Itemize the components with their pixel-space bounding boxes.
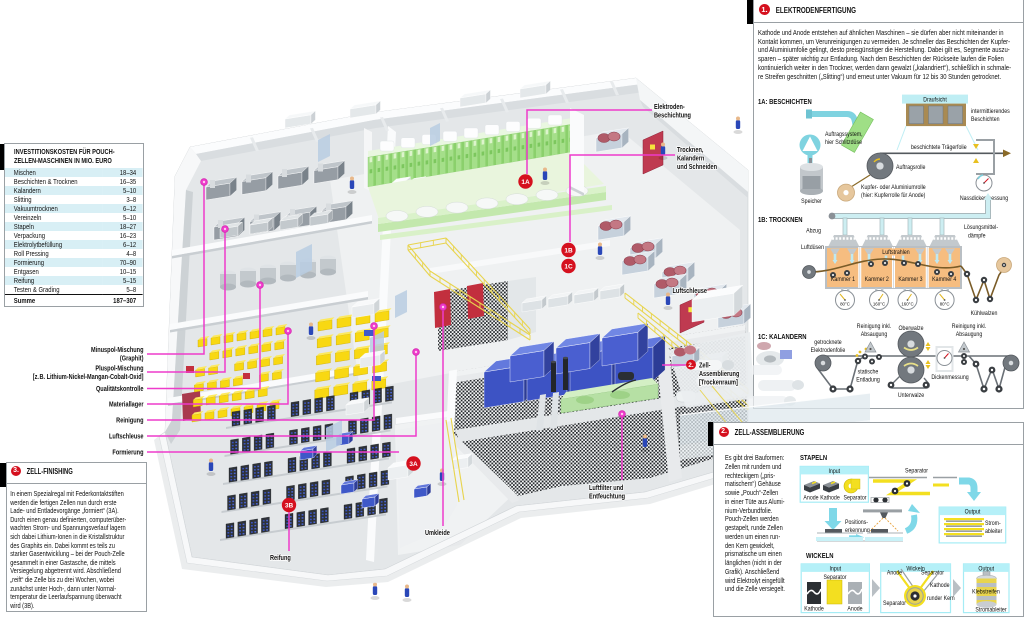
svg-text:Reinigung inkl.: Reinigung inkl. [952,324,987,331]
svg-text:1C: 1C [564,263,573,270]
svg-text:ableiter: ableiter [985,529,1002,536]
svg-text:Speicher: Speicher [801,199,822,206]
svg-text:Separator: Separator [843,495,866,502]
svg-text:Kammer 2: Kammer 2 [865,277,889,284]
svg-text:Materiallager: Materiallager [109,401,144,409]
svg-text:Reifung: Reifung [270,554,291,562]
svg-text:80°C: 80°C [840,302,850,307]
svg-text:Luftstrahlen: Luftstrahlen [882,250,909,257]
svg-text:2.: 2. [688,362,694,369]
svg-text:dämpfe: dämpfe [968,233,985,240]
svg-text:Kammer 3: Kammer 3 [898,277,922,284]
svg-text:Beschichten: Beschichten [971,117,1000,124]
svg-text:Auftragsrolle: Auftragsrolle [896,165,925,172]
svg-text:Separator: Separator [905,468,928,475]
svg-text:1B: TROCKNEN: 1B: TROCKNEN [758,217,803,225]
svg-text:Elektroden-: Elektroden- [654,103,685,111]
svg-text:Zell-: Zell- [699,362,710,370]
svg-text:Luftschleuse: Luftschleuse [673,287,708,295]
svg-text:[Trockenraum]: [Trockenraum] [699,379,738,387]
svg-text:Assemblierung: Assemblierung [699,370,740,378]
svg-text:getrocknete: getrocknete [814,340,841,347]
svg-text:Kühlwalzen: Kühlwalzen [971,311,998,318]
svg-text:80°C: 80°C [940,302,950,307]
svg-text:1A: 1A [521,179,530,186]
svg-text:(Graphit): (Graphit) [120,355,144,363]
svg-text:1C: KALANDERN: 1C: KALANDERN [758,334,807,342]
svg-text:Unterwalze: Unterwalze [898,393,924,400]
svg-text:Reinigung inkl.: Reinigung inkl. [857,324,892,331]
svg-text:Pluspol-Mischung: Pluspol-Mischung [95,365,143,373]
svg-text:160°C: 160°C [901,302,913,307]
svg-text:WICKELN: WICKELN [806,553,834,561]
svg-text:Draufsicht: Draufsicht [923,97,947,104]
svg-text:Output: Output [965,509,981,516]
svg-text:hier Schlitzdüse: hier Schlitzdüse [825,140,862,147]
svg-text:Input: Input [829,566,841,573]
svg-text:Abzug: Abzug [806,228,821,235]
svg-text:STAPELN: STAPELN [800,455,827,463]
svg-text:Kammer 4: Kammer 4 [932,277,957,284]
svg-text:Reinigung: Reinigung [116,417,143,425]
svg-text:Formierung: Formierung [112,449,143,457]
svg-text:Luftdüsen: Luftdüsen [801,245,824,252]
svg-text:1B: 1B [564,247,573,254]
svg-text:Absaugung: Absaugung [956,332,983,339]
svg-text:statische: statische [858,369,879,376]
svg-text:Trocknen,: Trocknen, [677,146,704,154]
svg-text:Entfeuchtung: Entfeuchtung [589,493,625,501]
svg-text:und Schneiden: und Schneiden [677,163,717,171]
svg-text:Nassdickenmessung: Nassdickenmessung [960,196,1008,203]
svg-text:1A: BESCHICHTEN: 1A: BESCHICHTEN [758,99,812,107]
svg-text:Kathode: Kathode [930,583,950,590]
svg-text:Luftschleuse: Luftschleuse [109,433,144,441]
svg-text:3B: 3B [285,502,294,509]
svg-text:Kalandern: Kalandern [677,155,704,163]
svg-text:Strom-: Strom- [985,521,1001,528]
svg-text:Klebstreifen: Klebstreifen [972,589,1000,596]
svg-text:runder Kern: runder Kern [927,596,955,603]
svg-text:Umkleide: Umkleide [425,529,450,537]
svg-text:160°C: 160°C [873,302,885,307]
svg-text:Dickenmessung: Dickenmessung [931,375,968,382]
svg-text:3A: 3A [409,461,418,468]
svg-text:Elektrodenfolie: Elektrodenfolie [811,348,846,355]
svg-text:Kathode: Kathode [804,606,824,613]
svg-text:Kupfer- oder Aluminiumrolle: Kupfer- oder Aluminiumrolle [861,185,926,192]
svg-text:Luftfilter und: Luftfilter und [589,484,624,492]
svg-text:Minuspol-Mischung: Minuspol-Mischung [91,346,144,354]
svg-text:Kammer 1: Kammer 1 [831,277,855,284]
svg-text:Anode: Anode [887,570,902,577]
svg-text:(hier: Kupferrolle für Anode): (hier: Kupferrolle für Anode) [861,193,925,200]
svg-text:Stromableiter: Stromableiter [975,607,1006,614]
svg-text:Entladung: Entladung [856,377,880,384]
svg-text:Auftragssystem,: Auftragssystem, [825,132,863,139]
svg-text:Lösungsmittel-: Lösungsmittel- [964,225,998,232]
svg-text:intermittierendes: intermittierendes [971,109,1010,116]
svg-text:Kathode: Kathode [820,495,840,502]
svg-text:Separator: Separator [921,570,944,577]
svg-text:Beschichtung: Beschichtung [654,112,691,120]
svg-text:Separator: Separator [883,601,906,608]
svg-text:Qualitätskontrolle: Qualitätskontrolle [96,385,144,393]
svg-text:Anode: Anode [847,606,862,613]
svg-text:Positions-: Positions- [845,520,868,527]
svg-text:beschichtete Trägerfolie: beschichtete Trägerfolie [911,145,967,152]
svg-text:[z. B. Lithium-Nickel-Mangan-C: [z. B. Lithium-Nickel-Mangan-Cobalt-Oxid… [33,373,144,381]
svg-text:Anode: Anode [803,495,818,502]
svg-text:Absaugung: Absaugung [861,332,888,339]
svg-text:Input: Input [828,468,840,475]
